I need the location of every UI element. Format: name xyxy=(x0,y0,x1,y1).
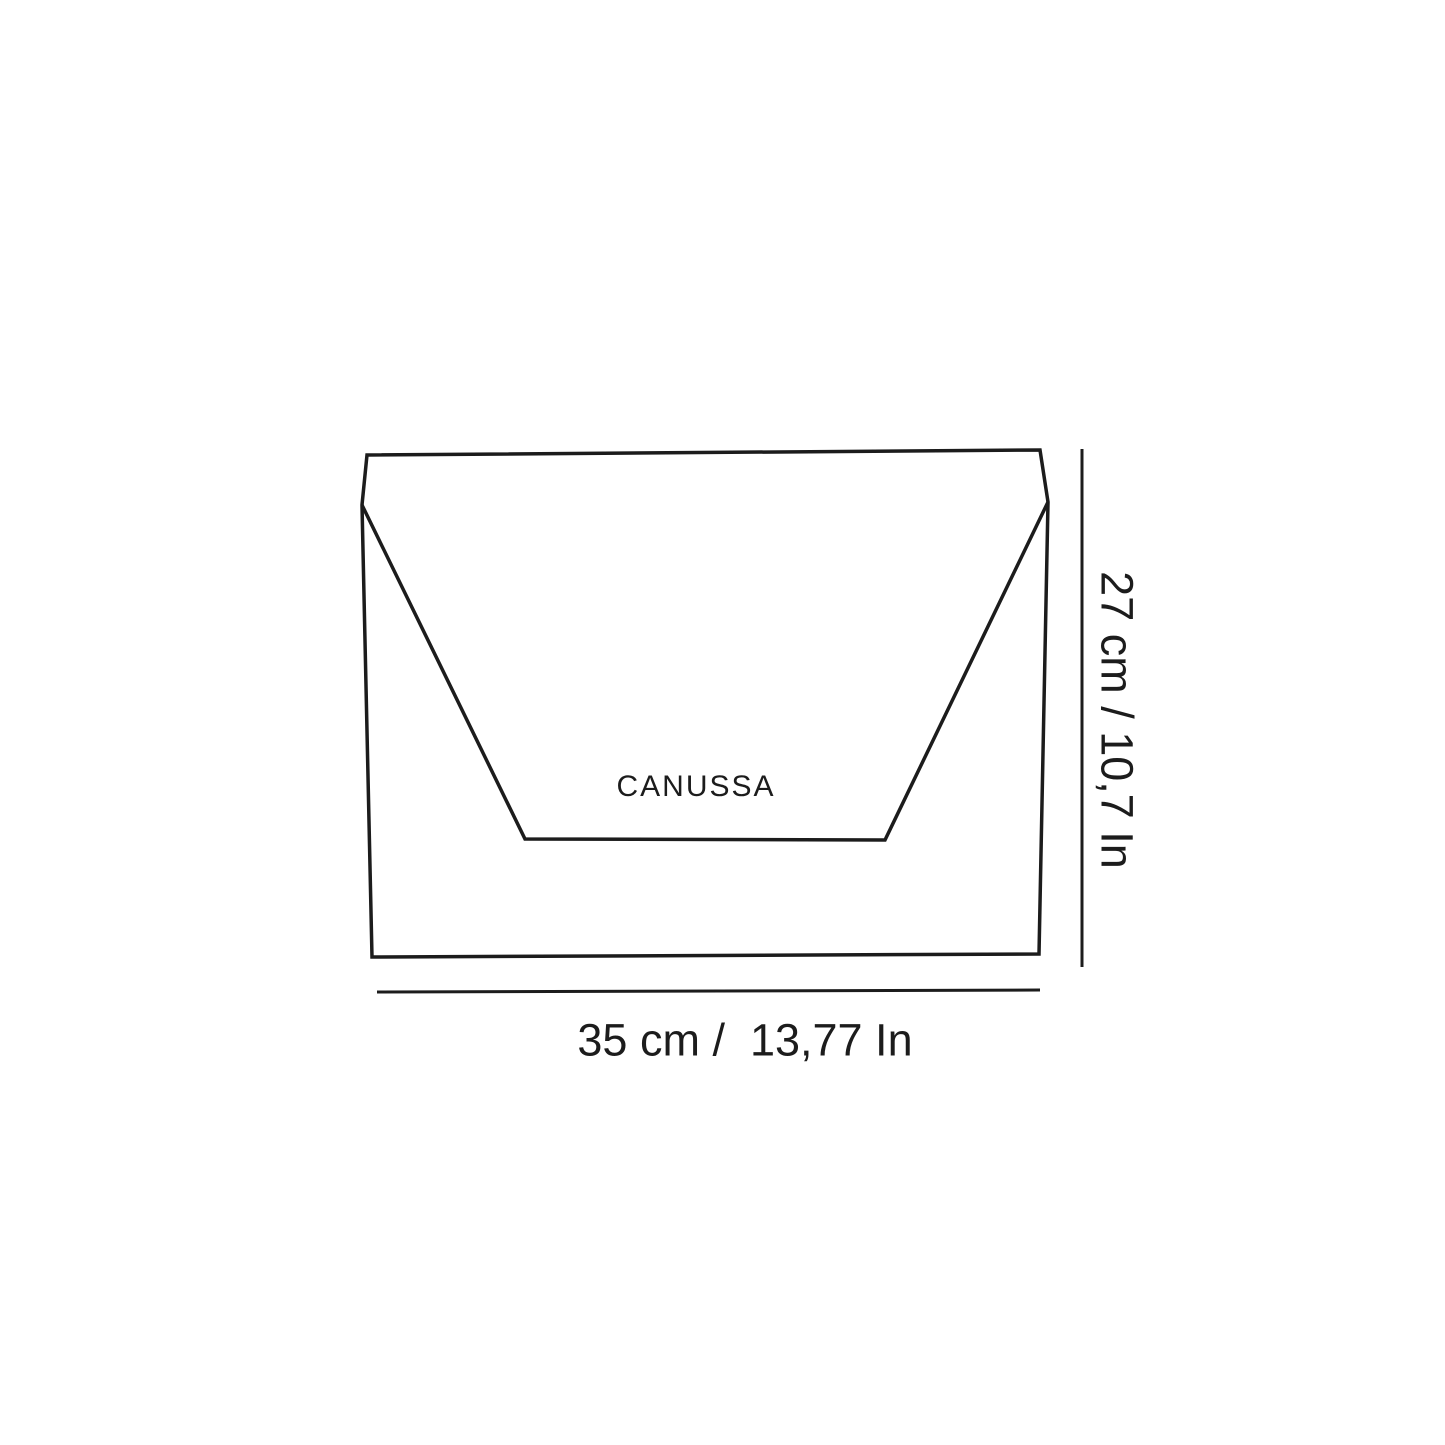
diagram-canvas xyxy=(0,0,1445,1445)
brand-logo: CANUSSA xyxy=(616,770,775,804)
width-dimension-line xyxy=(377,990,1040,992)
product-dimension-diagram: CANUSSA 35 cm / 13,77 In 27 cm / 10,7 In xyxy=(0,0,1445,1445)
bag-outline xyxy=(362,450,1048,957)
width-dimension-label: 35 cm / 13,77 In xyxy=(577,1018,912,1063)
height-dimension-label: 27 cm / 10,7 In xyxy=(1095,571,1140,869)
